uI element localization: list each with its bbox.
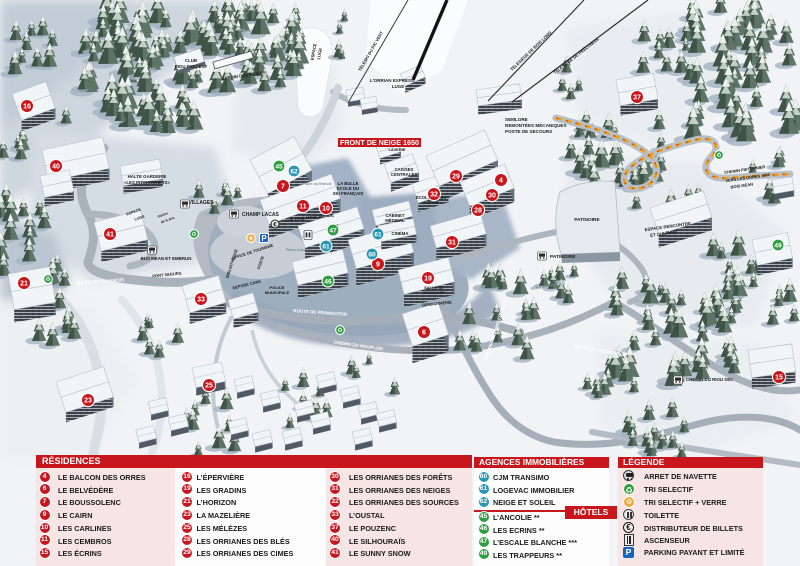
- svg-text:11: 11: [299, 203, 307, 210]
- svg-text:10: 10: [322, 205, 330, 212]
- svg-text:FRONT DE NEIGE 1650: FRONT DE NEIGE 1650: [340, 138, 419, 147]
- svg-text:«LES PITCHOUNETS»: «LES PITCHOUNETS»: [124, 180, 171, 185]
- svg-text:32: 32: [430, 191, 438, 198]
- svg-text:POSTE DE SECOURS: POSTE DE SECOURS: [505, 129, 552, 134]
- svg-text:41: 41: [106, 231, 114, 238]
- svg-text:REMONTÉES MÉCANIQUES: REMONTÉES MÉCANIQUES: [505, 121, 567, 128]
- svg-text:LAVERIE: LAVERIE: [388, 147, 405, 152]
- svg-text:MUNICIPALE: MUNICIPALE: [265, 290, 290, 295]
- svg-text:4: 4: [499, 177, 503, 184]
- svg-text:♻: ♻: [716, 152, 722, 159]
- svg-text:P: P: [261, 234, 267, 243]
- svg-text:19: 19: [424, 275, 432, 282]
- svg-text:6: 6: [422, 329, 426, 336]
- svg-text:23: 23: [84, 397, 92, 404]
- svg-text:PATINOIRE: PATINOIRE: [550, 254, 576, 260]
- svg-text:HALTE GARDERIE: HALTE GARDERIE: [128, 174, 167, 179]
- svg-text:47: 47: [329, 227, 337, 234]
- svg-text:€: €: [273, 221, 277, 228]
- svg-text:45: 45: [275, 163, 283, 170]
- svg-text:33: 33: [197, 296, 205, 303]
- svg-text:CENTRALES: CENTRALES: [391, 172, 417, 177]
- svg-text:LUGE: LUGE: [392, 84, 405, 89]
- svg-text:Place du festival: Place du festival: [302, 181, 331, 186]
- svg-text:60: 60: [368, 251, 376, 258]
- svg-text:25: 25: [205, 382, 213, 389]
- svg-text:CINÉMA: CINÉMA: [392, 231, 409, 236]
- svg-text:21: 21: [20, 280, 28, 287]
- svg-text:46: 46: [324, 278, 332, 285]
- svg-text:49: 49: [774, 242, 782, 249]
- svg-text:VILLAGES: VILLAGES: [188, 200, 214, 206]
- svg-text:61: 61: [374, 231, 382, 238]
- svg-text:37: 37: [633, 94, 641, 101]
- svg-text:L'ORRIAN EXPRESS: L'ORRIAN EXPRESS: [370, 78, 414, 83]
- svg-text:♻: ♻: [191, 231, 197, 238]
- svg-text:CLUB: CLUB: [185, 58, 197, 63]
- svg-text:SÉMINAIRE: SÉMINAIRE: [423, 290, 446, 295]
- svg-text:62: 62: [290, 168, 298, 175]
- svg-text:PIOU PIOU ESF: PIOU PIOU ESF: [175, 64, 208, 69]
- svg-text:28: 28: [474, 207, 482, 214]
- svg-text:BUS MEAN ET EMBRUN: BUS MEAN ET EMBRUN: [141, 256, 192, 261]
- svg-text:30: 30: [488, 192, 496, 199]
- svg-text:31: 31: [448, 239, 456, 246]
- svg-text:Place d'accueil: Place d'accueil: [286, 247, 313, 252]
- svg-text:PATINOIRE: PATINOIRE: [574, 217, 600, 223]
- svg-text:♻: ♻: [45, 276, 51, 283]
- svg-text:7: 7: [281, 183, 285, 190]
- svg-text:29: 29: [452, 173, 460, 180]
- svg-text:9: 9: [376, 261, 380, 268]
- svg-text:SEMLORE: SEMLORE: [505, 117, 528, 122]
- svg-text:SKI FRANÇAIS: SKI FRANÇAIS: [333, 191, 364, 196]
- svg-text:♻: ♻: [337, 327, 343, 334]
- svg-text:CHEMIN DU RIOU SEC: CHEMIN DU RIOU SEC: [686, 377, 734, 382]
- svg-text:40: 40: [52, 163, 60, 170]
- svg-text:61: 61: [322, 243, 330, 250]
- svg-text:CHAMP LACAS: CHAMP LACAS: [242, 212, 280, 218]
- svg-text:MÉDICAL: MÉDICAL: [385, 218, 405, 223]
- svg-text:15: 15: [775, 374, 783, 381]
- svg-text:16: 16: [23, 103, 31, 110]
